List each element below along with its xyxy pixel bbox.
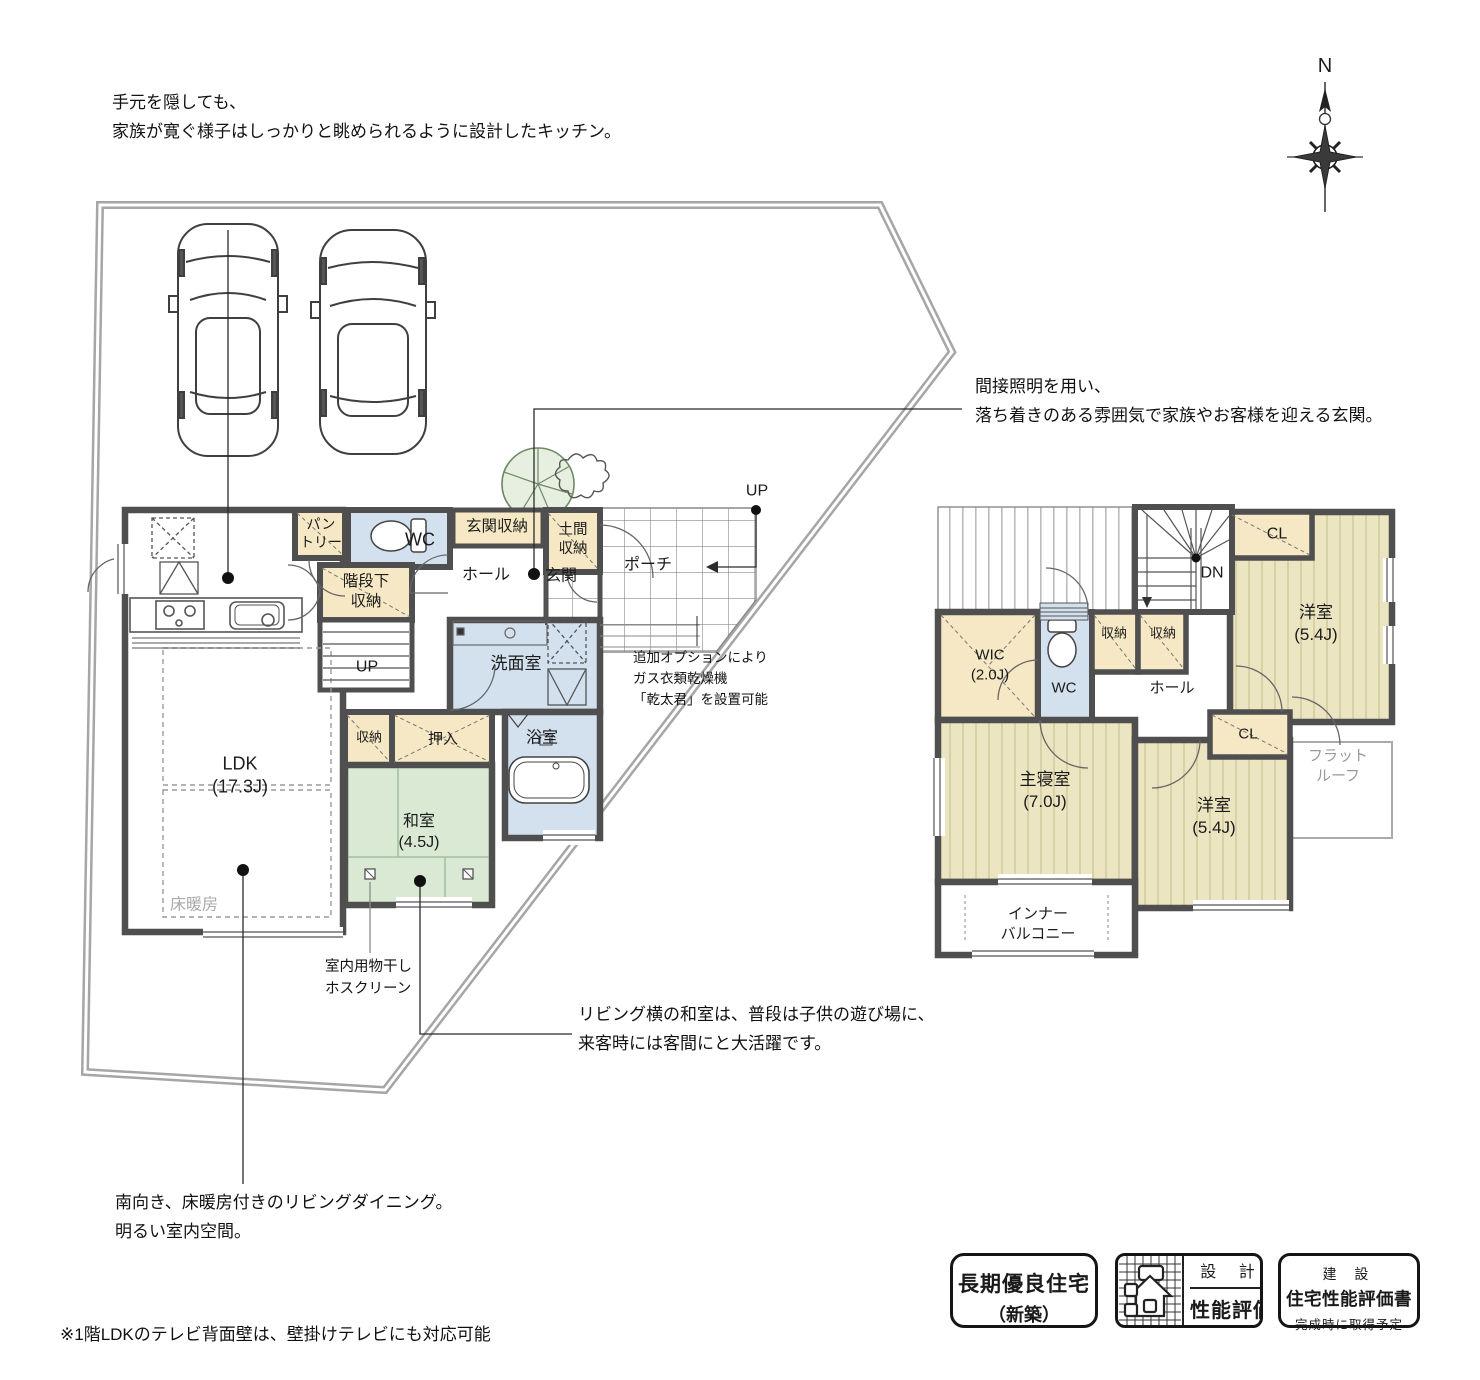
toilet-icon xyxy=(371,519,426,552)
room-yoshitsu-se xyxy=(1135,740,1290,908)
compass-icon xyxy=(1287,82,1363,212)
badge-kensetsu-bottom: 完成時に取得予定 xyxy=(1281,1314,1417,1333)
room-oshiire xyxy=(392,712,492,765)
badge-kensetsu-top: 建 設 xyxy=(1281,1264,1417,1284)
flat-roof-area xyxy=(1292,742,1392,838)
inner-balcony xyxy=(938,882,1135,955)
kitchen-note: 手元を隠しても、 家族が寛ぐ様子はしっかりと眺められるように設計したキッチン。 xyxy=(112,88,621,146)
wc2-window xyxy=(1040,603,1088,620)
badge-kensetsu-middle: 住宅性能評価書 xyxy=(1281,1286,1417,1311)
room-genkan-shuno xyxy=(453,510,543,546)
badge-sekkei-bottom: 性能評価 xyxy=(1190,1289,1263,1323)
badge-choki-yuryo: 長期優良住宅 （新築） xyxy=(950,1253,1098,1328)
footnote: ※1階LDKのテレビ背面壁は、壁掛けテレビにも対応可能 xyxy=(60,1320,491,1349)
south-note: 南向き、床暖房付きのリビングダイニング。 明るい室内空間。 xyxy=(115,1188,452,1246)
room-shushinshitsu xyxy=(938,720,1135,882)
house-grid-logo-icon xyxy=(1118,1256,1184,1325)
floor-plan-page: 手元を隠しても、 家族が寛ぐ様子はしっかりと眺められるように設計したキッチン。 … xyxy=(0,0,1480,1380)
stairs-2f xyxy=(1135,507,1232,612)
car-icon xyxy=(311,230,435,454)
hoscreen-note: 室内用物干し ホスクリーン xyxy=(325,956,412,1001)
tatami-room-note: リビング横の和室は、普段は子供の遊び場に、 来客時には客間にと大活躍です。 xyxy=(578,1000,935,1058)
badge-sekkei-hyoka: 設 計 性能評価 xyxy=(1115,1253,1263,1328)
floor2-plan xyxy=(930,507,1398,960)
dryer-note: 追加オプションにより ガス衣類乾燥機 「乾太君」を設置可能 xyxy=(633,648,768,711)
entrance-note: 間接照明を用い、 落ち着きのある雰囲気で家族やお客様を迎える玄関。 xyxy=(975,372,1383,430)
badge-choki-line2: （新築） xyxy=(953,1301,1095,1327)
dn-dot xyxy=(1192,554,1201,563)
room-senmen xyxy=(450,620,600,712)
toilet-icon xyxy=(1048,620,1076,667)
badge-kensetsu-hyoka: 建 設 住宅性能評価書 完成時に取得予定 xyxy=(1278,1253,1420,1328)
badge-choki-line1: 長期優良住宅 xyxy=(953,1268,1095,1298)
badge-sekkei-top: 設 計 xyxy=(1190,1258,1263,1289)
roof-area xyxy=(938,507,1135,612)
